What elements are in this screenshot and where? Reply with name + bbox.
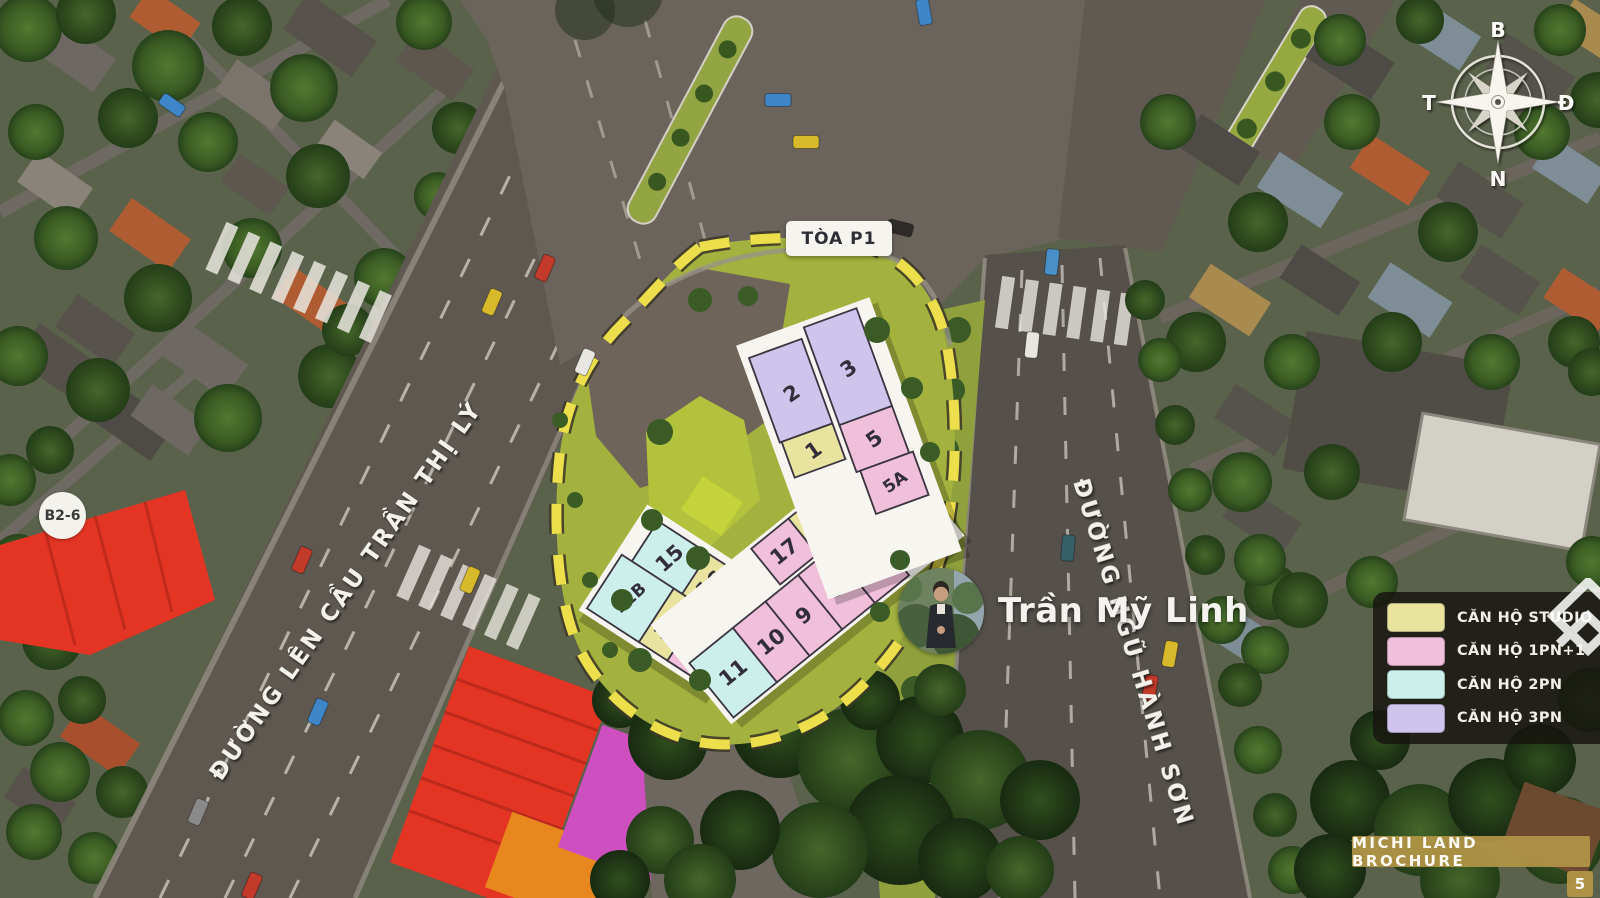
- legend-label-2pn: CĂN HỘ 2PN: [1457, 677, 1562, 693]
- page-number-badge: 5: [1567, 871, 1593, 897]
- agent-avatar: [898, 568, 984, 654]
- legend-label-3pn: CĂN HỘ 3PN: [1457, 710, 1562, 726]
- legend-swatch-1pn1: [1387, 637, 1445, 666]
- car: [793, 136, 819, 149]
- legend-swatch-studio: [1387, 603, 1445, 632]
- agent-avatar-photo: [898, 568, 984, 654]
- legend-swatch-2pn: [1387, 670, 1445, 699]
- agent-watermark: Trần Mỹ Linh: [898, 568, 1249, 654]
- compass-east-label: Đ: [1558, 91, 1575, 115]
- compass-north-label: B: [1490, 18, 1505, 42]
- car: [1060, 534, 1075, 561]
- car: [765, 94, 791, 107]
- car: [1024, 331, 1040, 358]
- michi-land-home-logo-icon: [1543, 578, 1600, 672]
- legend-swatch-3pn: [1387, 704, 1445, 733]
- agent-name: Trần Mỹ Linh: [998, 591, 1249, 631]
- legend-row-3pn: CĂN HỘ 3PN: [1387, 702, 1600, 735]
- brochure-banner-text: MICHI LAND BROCHURE: [1352, 834, 1590, 870]
- aerial-scene: 15 16 12B 12A 12: [0, 0, 1600, 898]
- building-p1-label-text: TÒA P1: [802, 229, 877, 249]
- b2-6-label-text: B2-6: [45, 508, 81, 524]
- page-number: 5: [1575, 875, 1585, 893]
- building-p1-label: TÒA P1: [786, 221, 892, 256]
- b2-6-label: B2-6: [39, 492, 86, 539]
- compass-west-label: T: [1422, 91, 1436, 115]
- compass-south-label: N: [1490, 167, 1507, 191]
- brochure-page-aerial-site-plan: 15 16 12B 12A 12: [0, 0, 1600, 898]
- legend-row-2pn: CĂN HỘ 2PN: [1387, 668, 1600, 701]
- car: [1044, 248, 1060, 275]
- brochure-banner: MICHI LAND BROCHURE: [1352, 836, 1590, 867]
